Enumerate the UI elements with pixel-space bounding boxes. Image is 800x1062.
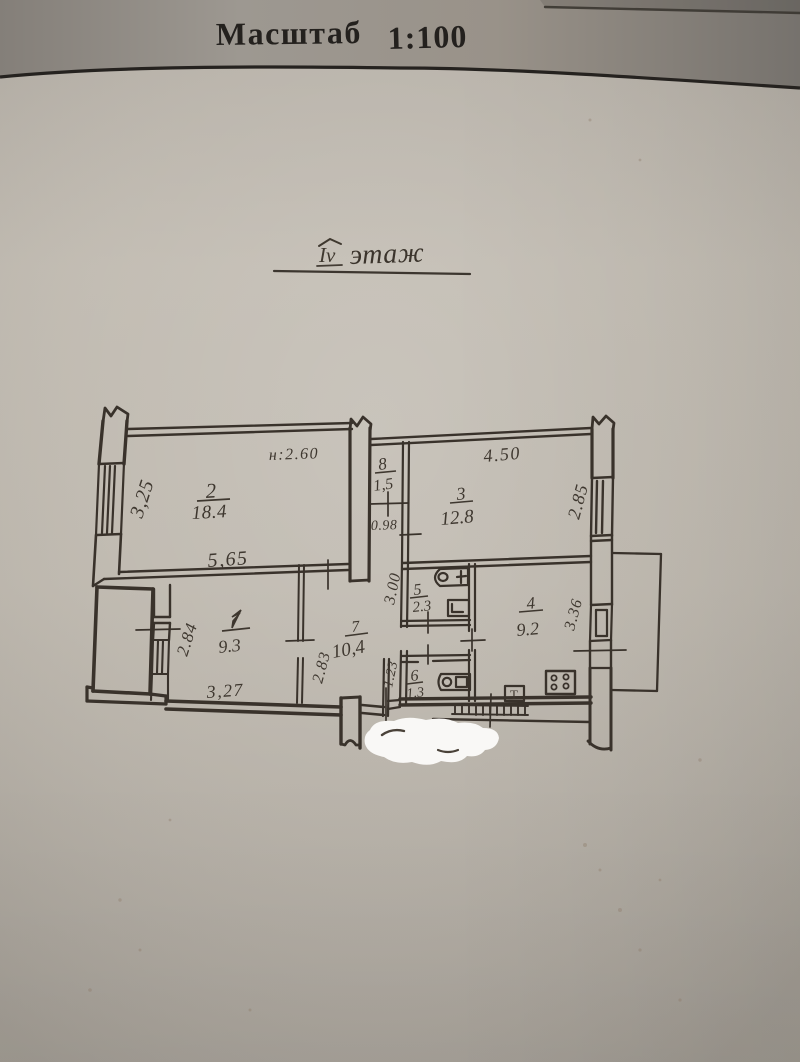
svg-text:9.3: 9.3 xyxy=(217,635,241,657)
svg-text:4.50: 4.50 xyxy=(483,443,522,466)
svg-text:5,65: 5,65 xyxy=(207,547,249,572)
svg-text:0.98: 0.98 xyxy=(371,518,398,534)
svg-text:1,5: 1,5 xyxy=(372,475,394,495)
svg-text:1:100: 1:100 xyxy=(387,18,468,56)
svg-text:12.8: 12.8 xyxy=(440,506,475,530)
svg-text:2.3: 2.3 xyxy=(412,598,432,616)
svg-text:3,27: 3,27 xyxy=(205,679,245,702)
svg-text:9.2: 9.2 xyxy=(516,618,540,640)
svg-text:18.4: 18.4 xyxy=(191,501,227,524)
svg-text:этаж: этаж xyxy=(349,237,425,271)
svg-text:Т: Т xyxy=(510,687,518,702)
svg-text:Iv: Iv xyxy=(318,243,336,267)
svg-text:Масштаб: Масштаб xyxy=(216,14,363,52)
svg-text:н:2.60: н:2.60 xyxy=(269,445,320,464)
svg-text:1.3: 1.3 xyxy=(406,685,425,702)
